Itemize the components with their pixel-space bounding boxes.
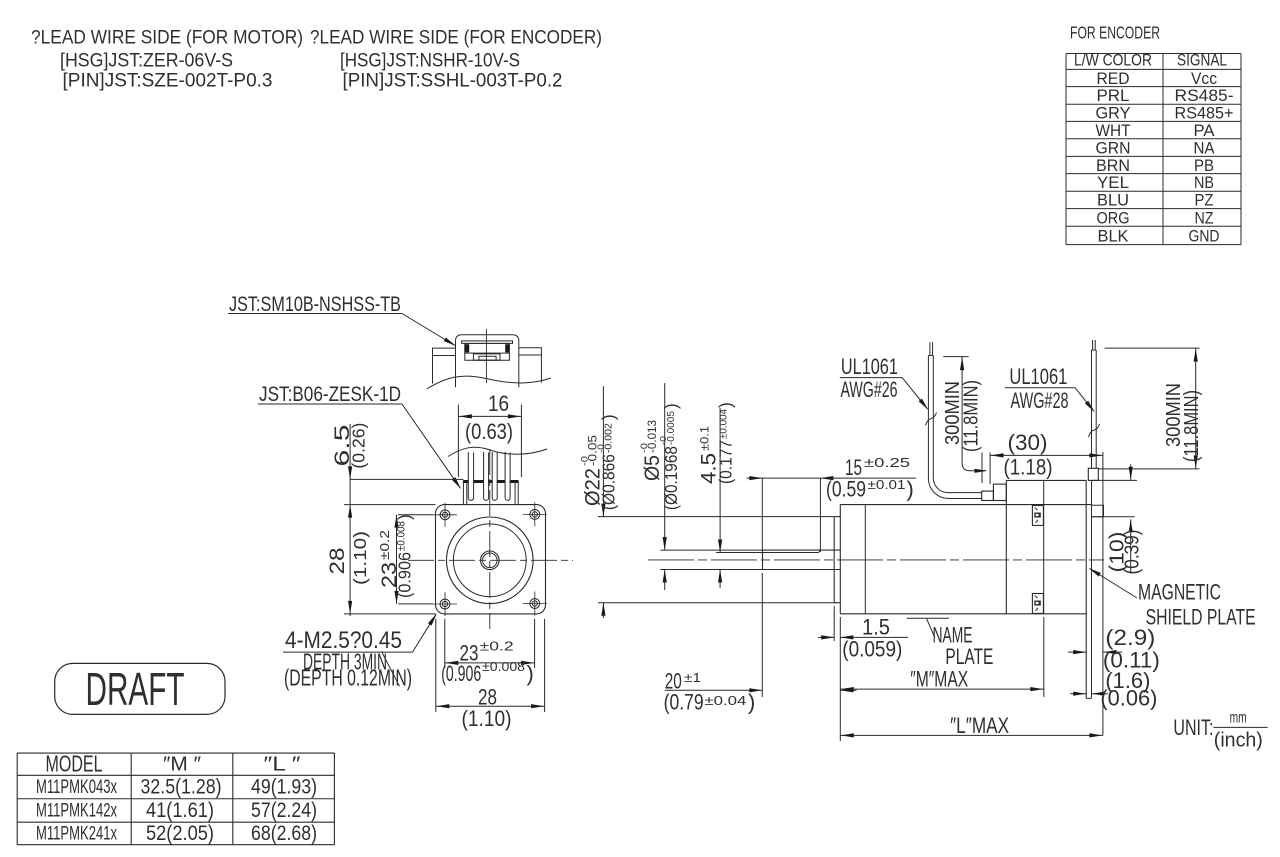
svg-text:PZ: PZ xyxy=(1195,192,1214,210)
svg-text:(0.59: (0.59 xyxy=(826,477,866,502)
svg-text:(30): (30) xyxy=(1008,430,1048,455)
svg-text:32.5(1.28): 32.5(1.28) xyxy=(141,776,222,799)
svg-text:RED: RED xyxy=(1097,70,1130,88)
svg-text:(11.8MIN): (11.8MIN) xyxy=(961,380,983,452)
svg-text:MAGNETIC: MAGNETIC xyxy=(1138,580,1221,605)
svg-text:(1.10): (1.10) xyxy=(350,531,370,585)
svg-text:57(2.24): 57(2.24) xyxy=(251,799,317,822)
svg-text:(0.906: (0.906 xyxy=(395,552,415,598)
svg-text:28: 28 xyxy=(326,548,349,575)
svg-text:RS485-: RS485- xyxy=(1175,87,1234,105)
svg-text:±0.008: ±0.008 xyxy=(396,521,408,551)
svg-text:[PIN]JST:SZE-002T-P0.3: [PIN]JST:SZE-002T-P0.3 xyxy=(63,71,273,92)
svg-text:±0.25: ±0.25 xyxy=(864,455,910,470)
svg-text:(11.8MIN): (11.8MIN) xyxy=(1181,390,1203,462)
svg-text:GND: GND xyxy=(1189,227,1220,245)
svg-text:(0.39): (0.39) xyxy=(1122,530,1144,575)
svg-text:±0.2: ±0.2 xyxy=(377,530,392,560)
svg-text:): ) xyxy=(395,514,415,520)
svg-text:PLATE: PLATE xyxy=(945,644,993,669)
svg-text:JST:B06-ZESK-1D: JST:B06-ZESK-1D xyxy=(259,383,401,406)
svg-text:PA: PA xyxy=(1194,122,1215,140)
svg-text:41(1.61): 41(1.61) xyxy=(146,799,214,822)
svg-text:ORG: ORG xyxy=(1097,209,1130,227)
svg-text:(0.63): (0.63) xyxy=(465,419,513,444)
svg-text:?LEAD WIRE SIDE (FOR ENCODER): ?LEAD WIRE SIDE (FOR ENCODER) xyxy=(310,28,602,49)
svg-text:JST:SM10B-NSHSS-TB: JST:SM10B-NSHSS-TB xyxy=(229,293,401,316)
svg-text:RS485+: RS485+ xyxy=(1175,105,1234,123)
svg-text:″L″MAX: ″L″MAX xyxy=(950,713,1009,738)
svg-text:UNIT:: UNIT: xyxy=(1173,715,1213,740)
svg-text:BLU: BLU xyxy=(1097,192,1129,210)
svg-text:NB: NB xyxy=(1194,174,1214,192)
svg-text:(Ø0.866: (Ø0.866 xyxy=(599,454,619,510)
svg-text:[PIN]JST:SSHL-003T-P0.2: [PIN]JST:SSHL-003T-P0.2 xyxy=(343,71,563,92)
svg-text:″L ″: ″L ″ xyxy=(264,754,301,776)
svg-text:″M ″: ″M ″ xyxy=(163,754,201,776)
svg-text:16: 16 xyxy=(488,391,509,416)
svg-text:[HSG]JST:ZER-06V-S: [HSG]JST:ZER-06V-S xyxy=(60,51,233,72)
svg-text:DRAFT: DRAFT xyxy=(86,663,185,715)
svg-text:AWG#26: AWG#26 xyxy=(841,377,898,402)
svg-text:(0.906: (0.906 xyxy=(441,661,481,686)
svg-text:M11PMK142x: M11PMK142x xyxy=(36,801,117,822)
svg-text:PRL: PRL xyxy=(1097,87,1130,105)
svg-text:YEL: YEL xyxy=(1097,174,1129,192)
svg-text:(1.18): (1.18) xyxy=(1004,455,1053,480)
svg-text:-0: -0 xyxy=(597,443,606,453)
svg-text:GRN: GRN xyxy=(1096,139,1131,157)
svg-text:SIGNAL: SIGNAL xyxy=(1177,52,1227,70)
svg-text:): ) xyxy=(907,477,914,502)
svg-text:BRN: BRN xyxy=(1096,157,1130,175)
svg-text:mm: mm xyxy=(1230,710,1247,727)
svg-text:): ) xyxy=(661,403,681,409)
svg-text:49(1.93): 49(1.93) xyxy=(251,776,317,799)
svg-text:68(2.68): 68(2.68) xyxy=(251,822,317,845)
svg-text:FOR ENCODER: FOR ENCODER xyxy=(1070,23,1160,43)
svg-text:PB: PB xyxy=(1194,157,1214,175)
svg-text:±0.01: ±0.01 xyxy=(868,477,906,492)
svg-text:(DEPTH 0.12MIN): (DEPTH 0.12MIN) xyxy=(284,665,412,691)
svg-text:52(2.05): 52(2.05) xyxy=(146,822,214,845)
svg-text:UL1061: UL1061 xyxy=(841,354,898,379)
svg-text:-0: -0 xyxy=(659,435,668,445)
svg-text:(Ø0.1968: (Ø0.1968 xyxy=(661,446,681,510)
svg-text:AWG#28: AWG#28 xyxy=(1011,388,1069,413)
svg-text:L/W COLOR: L/W COLOR xyxy=(1074,52,1152,70)
svg-text:±0.004: ±0.004 xyxy=(718,409,730,439)
svg-text:): ) xyxy=(527,661,534,686)
svg-text:±1: ±1 xyxy=(684,670,701,685)
svg-text:NA: NA xyxy=(1194,139,1215,157)
svg-text:(0.177: (0.177 xyxy=(716,440,736,484)
svg-text:±0.2: ±0.2 xyxy=(480,639,514,654)
svg-text:M11PMK043x: M11PMK043x xyxy=(36,777,117,798)
svg-text:(0.06): (0.06) xyxy=(1100,686,1157,711)
svg-text:?LEAD WIRE SIDE (FOR MOTOR): ?LEAD WIRE SIDE (FOR MOTOR) xyxy=(31,28,303,49)
svg-text:GRY: GRY xyxy=(1096,105,1131,123)
svg-text:WHT: WHT xyxy=(1096,122,1131,140)
svg-text:SHIELD PLATE: SHIELD PLATE xyxy=(1146,605,1256,630)
svg-text:(2.9): (2.9) xyxy=(1105,625,1155,650)
svg-text:BLK: BLK xyxy=(1098,227,1129,245)
svg-text:(1.10): (1.10) xyxy=(462,706,512,731)
svg-text:): ) xyxy=(716,402,736,408)
svg-text:NZ: NZ xyxy=(1195,209,1214,227)
svg-text:-0: -0 xyxy=(639,443,649,453)
svg-text:(0.059): (0.059) xyxy=(842,637,902,662)
svg-text:(0.26): (0.26) xyxy=(349,423,369,469)
svg-text:MODEL: MODEL xyxy=(46,751,103,777)
svg-text:(0.79: (0.79 xyxy=(664,690,704,715)
svg-text:[HSG]JST:NSHR-10V-S: [HSG]JST:NSHR-10V-S xyxy=(340,51,520,72)
svg-text:(inch): (inch) xyxy=(1214,730,1263,752)
svg-text:±0.1: ±0.1 xyxy=(698,426,712,451)
svg-text:-0: -0 xyxy=(580,456,590,466)
svg-text:Vcc: Vcc xyxy=(1191,70,1217,88)
svg-text:″M″MAX: ″M″MAX xyxy=(910,667,968,692)
svg-text:): ) xyxy=(748,690,755,715)
svg-text:±0.04: ±0.04 xyxy=(704,693,746,708)
svg-text:±0.008: ±0.008 xyxy=(482,659,525,674)
svg-text:): ) xyxy=(599,414,619,420)
svg-text:UL1061: UL1061 xyxy=(1009,364,1067,389)
svg-text:M11PMK241x: M11PMK241x xyxy=(36,824,117,845)
